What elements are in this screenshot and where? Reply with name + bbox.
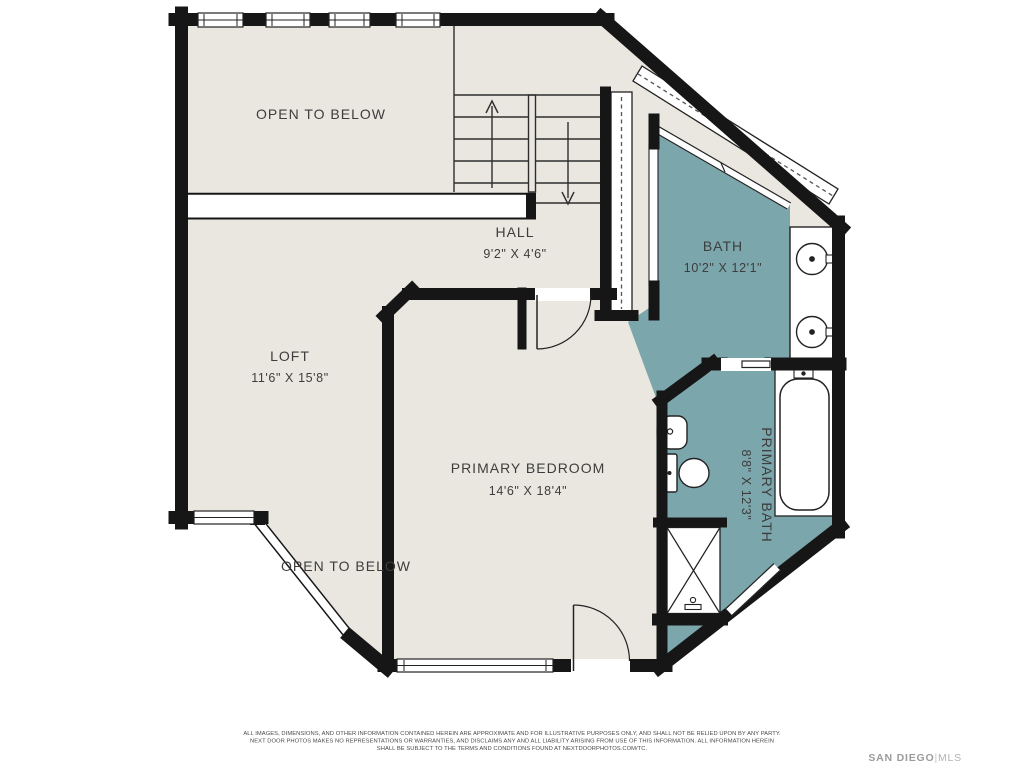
window-icon [198, 13, 243, 27]
disclaimer-line-3: SHALL BE SUBJECT TO THE TERMS AND CONDIT… [377, 746, 648, 752]
dims-primary-bedroom: 14'6" X 18'4" [489, 484, 567, 498]
dims-bath: 10'2" X 12'1" [684, 261, 762, 275]
window-icon [194, 511, 254, 524]
label-loft: LOFT [270, 348, 310, 364]
bathtub-icon [780, 379, 829, 510]
railing-end-post [526, 193, 536, 219]
floor-plan-svg: OPEN TO BELOW HALL 9'2" X 4'6" BATH 10'2… [0, 0, 1024, 768]
shower [667, 528, 720, 614]
hall-closet [611, 92, 632, 314]
label-open-to-below-top: OPEN TO BELOW [256, 106, 386, 122]
window-icon [397, 659, 553, 672]
vanity [790, 227, 838, 360]
label-hall: HALL [495, 224, 534, 240]
dims-loft: 11'6" X 15'8" [251, 371, 329, 385]
mls-logo-suffix: MLS [938, 752, 962, 764]
bath-pocket-door-icon [649, 144, 658, 285]
label-bath: BATH [703, 238, 743, 254]
footer: ALL IMAGES, DIMENSIONS, AND OTHER INFORM… [243, 731, 962, 764]
bathtub [775, 367, 834, 516]
label-primary-bedroom: PRIMARY BEDROOM [451, 460, 606, 476]
disclaimer-line-2: NEXT DOOR PHOTOS MAKES NO REPRESENTATION… [250, 739, 774, 745]
loft-railing [175, 193, 536, 219]
floorplan-page: OPEN TO BELOW HALL 9'2" X 4'6" BATH 10'2… [0, 0, 1024, 768]
label-primary-bath: PRIMARY BATH [759, 427, 775, 542]
window-icon [266, 13, 310, 27]
mls-logo-name: SAN DIEGO [868, 752, 934, 764]
disclaimer-line-1: ALL IMAGES, DIMENSIONS, AND OTHER INFORM… [243, 731, 781, 737]
window-icon [396, 13, 440, 27]
label-open-to-below-bottom: OPEN TO BELOW [281, 558, 411, 574]
dims-primary-bath: 8'8" X 12'3" [739, 450, 753, 521]
dims-hall: 9'2" X 4'6" [483, 247, 546, 261]
mls-logo: SAN DIEGO|MLS [868, 752, 962, 764]
primary-bath-pocket-door-icon [721, 358, 771, 371]
window-icon [329, 13, 370, 27]
